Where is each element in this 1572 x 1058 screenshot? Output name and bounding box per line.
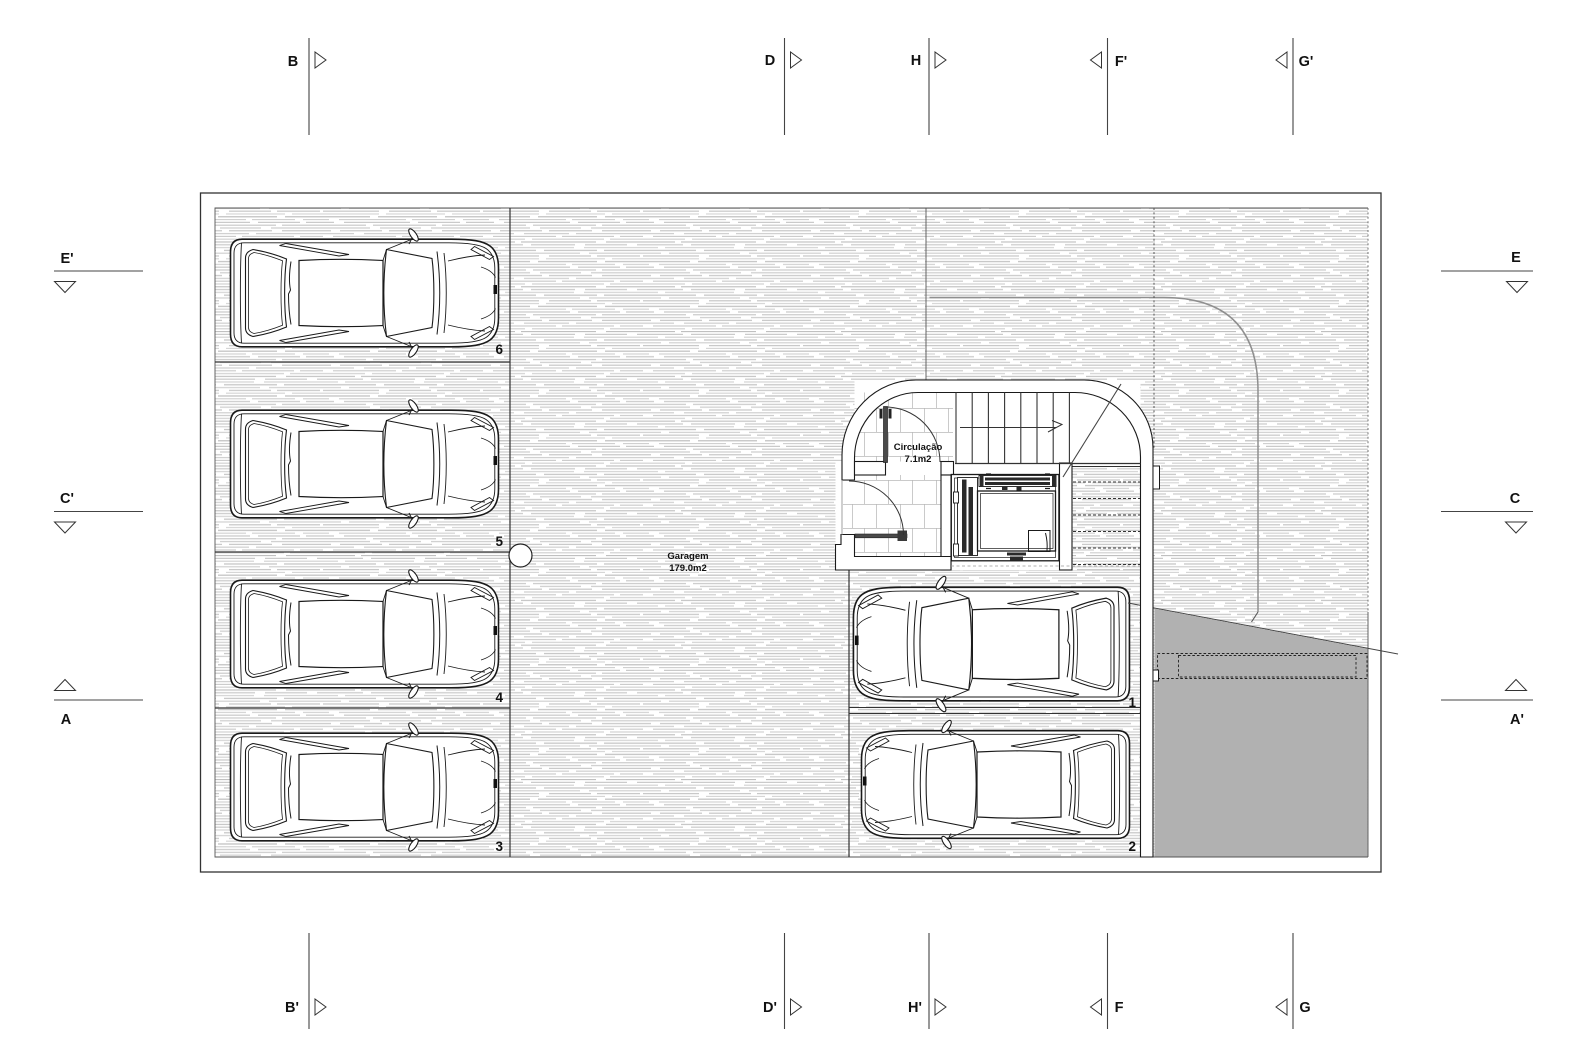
svg-text:A: A (61, 712, 72, 728)
svg-text:5: 5 (495, 534, 503, 549)
svg-text:1: 1 (1128, 695, 1136, 710)
svg-text:F': F' (1115, 54, 1127, 70)
svg-text:G': G' (1299, 54, 1314, 70)
svg-text:E: E (1511, 250, 1521, 266)
svg-text:F: F (1115, 1000, 1124, 1016)
svg-text:Circulação: Circulação (894, 442, 943, 453)
svg-text:D: D (765, 53, 775, 69)
svg-text:E': E' (60, 251, 73, 267)
svg-text:2: 2 (1128, 839, 1136, 854)
svg-text:B: B (288, 54, 298, 70)
svg-text:H: H (911, 53, 921, 69)
svg-text:6: 6 (495, 342, 503, 357)
svg-text:C: C (1510, 491, 1521, 507)
svg-text:7.1m2: 7.1m2 (905, 454, 932, 465)
svg-text:4: 4 (495, 690, 503, 705)
svg-text:D': D' (763, 1000, 777, 1016)
svg-text:Garagem: Garagem (667, 551, 708, 562)
svg-text:H': H' (908, 1000, 922, 1016)
svg-text:179.0m2: 179.0m2 (669, 563, 707, 574)
svg-text:3: 3 (495, 839, 503, 854)
svg-text:G: G (1299, 1000, 1310, 1016)
svg-text:B': B' (285, 1000, 299, 1016)
svg-text:A': A' (1510, 712, 1524, 728)
svg-text:C': C' (60, 491, 74, 507)
